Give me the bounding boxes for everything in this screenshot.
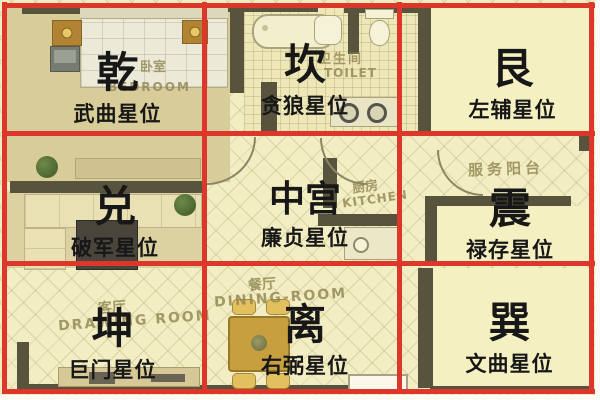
trigram-dui: 兑 bbox=[40, 186, 190, 229]
wall-bottomright-vertical bbox=[418, 268, 433, 388]
wall-kitchen-right bbox=[418, 3, 431, 133]
star-kan: 贪狼星位 bbox=[225, 90, 385, 120]
grid-line-vertical-left bbox=[2, 2, 7, 394]
grid-line-horizontal-bottom bbox=[2, 389, 595, 394]
star-dui: 破军星位 bbox=[40, 232, 190, 262]
trigram-qian: 乾 bbox=[40, 52, 195, 95]
trigram-kun: 坤 bbox=[35, 308, 190, 351]
grid-line-vertical-2 bbox=[397, 2, 402, 394]
right-margin bbox=[595, 0, 600, 400]
bottom-margin bbox=[0, 395, 600, 400]
cell-label-kun: 坤 巨门星位 bbox=[35, 308, 190, 384]
trigram-kan: 坎 bbox=[225, 44, 385, 87]
star-zhen: 禄存星位 bbox=[430, 234, 590, 264]
star-xun: 文曲星位 bbox=[432, 348, 587, 378]
star-zhonggong: 廉贞星位 bbox=[225, 222, 385, 252]
plant-icon bbox=[36, 156, 58, 178]
star-li: 右弼星位 bbox=[225, 350, 385, 380]
cell-label-gen: 艮 左辅星位 bbox=[435, 48, 590, 124]
star-gen: 左辅星位 bbox=[435, 94, 590, 124]
star-qian: 武曲星位 bbox=[40, 98, 195, 128]
trigram-zhonggong: 中宫 bbox=[225, 182, 385, 219]
cell-label-dui: 兑 破军星位 bbox=[40, 186, 190, 262]
cell-label-zhen: 震 禄存星位 bbox=[430, 188, 590, 264]
cell-label-li: 离 右弼星位 bbox=[225, 304, 385, 380]
toilet-tank bbox=[365, 9, 394, 19]
cell-label-qian: 乾 武曲星位 bbox=[40, 52, 195, 128]
trigram-li: 离 bbox=[225, 304, 385, 347]
trigram-gen: 艮 bbox=[435, 48, 590, 91]
fengshui-floorplan: 卧室 BEDROOM 卫生间 TOILET 厨房 KITCHEN 服务阳台 客厅… bbox=[0, 0, 600, 400]
lamp-icon bbox=[190, 27, 201, 38]
trigram-xun: 巽 bbox=[432, 302, 587, 345]
sideboard-cabinet bbox=[75, 158, 201, 179]
cell-label-zhonggong: 中宫 廉贞星位 bbox=[225, 182, 385, 252]
lamp-icon bbox=[62, 28, 73, 39]
toilet-bowl bbox=[369, 20, 390, 46]
service-balcony-label: 服务阳台 bbox=[468, 157, 545, 181]
trigram-zhen: 震 bbox=[430, 188, 590, 231]
nightstand-left bbox=[52, 20, 82, 46]
star-kun: 巨门星位 bbox=[35, 354, 190, 384]
cell-label-kan: 坎 贪狼星位 bbox=[225, 44, 385, 120]
grid-line-horizontal-1 bbox=[2, 131, 595, 136]
drain-icon bbox=[262, 25, 268, 31]
cell-label-xun: 巽 文曲星位 bbox=[432, 302, 587, 378]
bedroom-door-arc bbox=[206, 137, 256, 185]
grid-line-vertical-1 bbox=[202, 2, 207, 394]
grid-line-horizontal-top bbox=[2, 3, 595, 8]
